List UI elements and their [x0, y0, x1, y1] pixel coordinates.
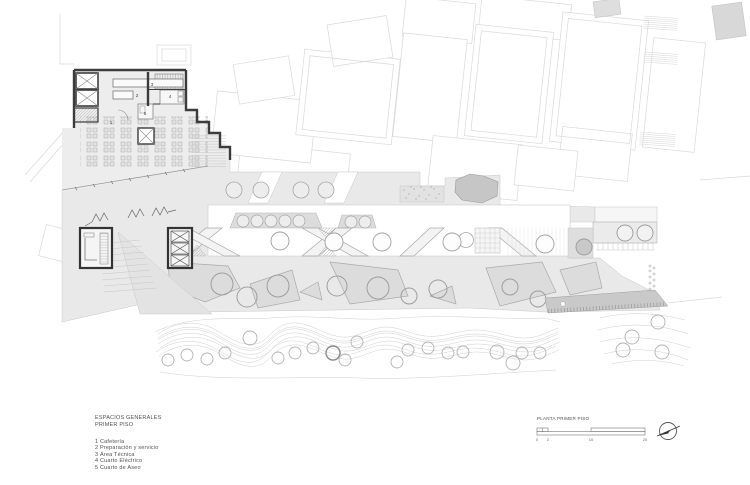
scale-tick-20: 20	[643, 437, 648, 442]
room-label-1: 1	[110, 120, 113, 125]
north-arrow-icon	[657, 423, 680, 440]
room-label-4: 4	[169, 94, 172, 99]
gravel-strip	[400, 186, 444, 202]
scale-tick-2: 2	[547, 437, 550, 442]
legend-title-line2: PRIMER PISO	[95, 422, 161, 429]
scale-tick-0: 0	[536, 437, 539, 442]
scale-bar: 0 2 10 20	[536, 428, 648, 442]
plan-title: PLANTA PRIMER PISO	[537, 416, 589, 421]
legend-item-2: 2 Preparación y servicio	[95, 445, 161, 452]
legend-item-5: 5 Cuarto de Aseo	[95, 465, 161, 472]
room-label-3: 3	[151, 82, 154, 87]
floor-plan-drawing: 1 2 3 4 5 0 2 10 20	[0, 0, 750, 485]
scale-tick-10: 10	[589, 437, 594, 442]
room-label-5: 5	[144, 111, 147, 116]
legend-item-3: 3 Área Técnica	[95, 452, 161, 459]
architectural-plan-sheet: 1 2 3 4 5 0 2 10 20 ESPACIOS GENERALES P…	[0, 0, 750, 485]
legend-item-1: 1 Cafetería	[95, 439, 161, 446]
legend-item-4: 4 Cuarto Eléctrico	[95, 458, 161, 465]
garden-trees	[162, 315, 669, 370]
legend: ESPACIOS GENERALES PRIMER PISO 1 Cafeter…	[95, 415, 161, 472]
legend-title-line1: ESPACIOS GENERALES	[95, 415, 161, 422]
room-label-2: 2	[136, 93, 139, 98]
